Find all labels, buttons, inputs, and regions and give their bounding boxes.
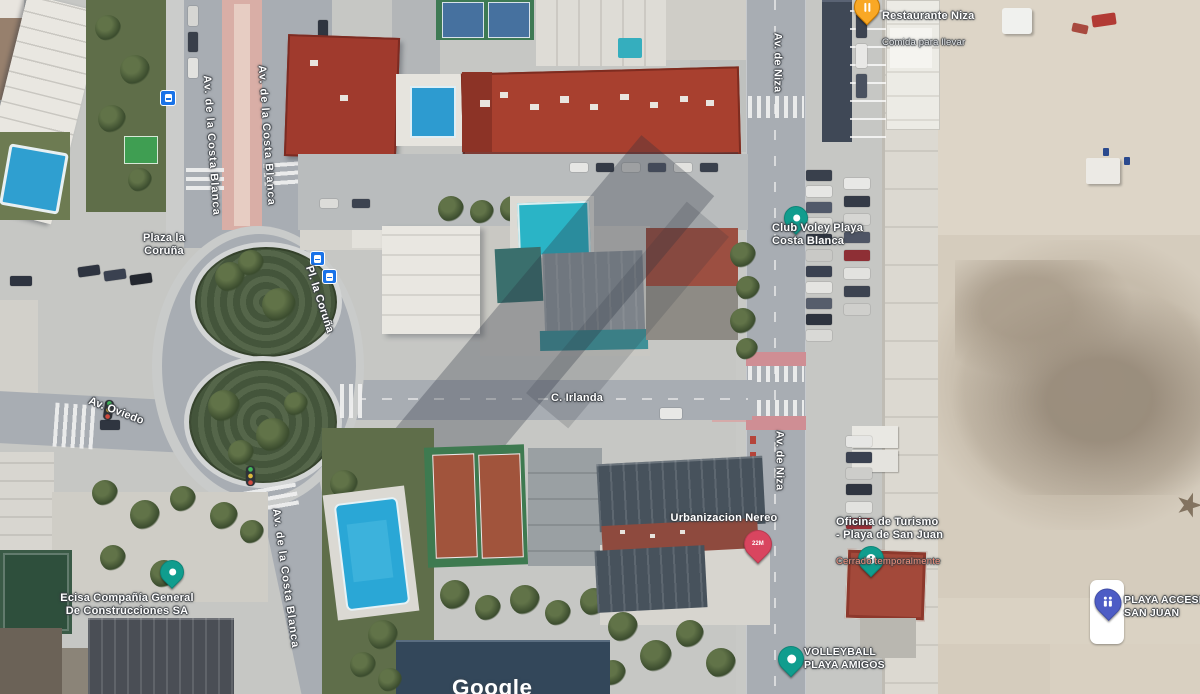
walkway-detail	[680, 530, 685, 534]
walkway-detail	[620, 530, 625, 534]
parked-car	[570, 163, 588, 172]
palm-tree	[368, 620, 398, 650]
tree	[676, 620, 704, 648]
roof-vent	[480, 100, 490, 107]
parked-car	[10, 276, 32, 286]
parked-car	[806, 186, 832, 197]
tree	[120, 55, 150, 85]
poi-label-volleyball[interactable]: VOLLEYBALL PLAYA AMIGOS	[804, 646, 914, 671]
building	[0, 300, 38, 396]
palm-tree	[510, 585, 540, 615]
ball-glyph	[787, 655, 796, 664]
tree	[95, 15, 121, 41]
poi-label-club-voley[interactable]: Club Voley Playa Costa Blanca	[772, 222, 892, 248]
pin-badge-text: 22M	[752, 541, 764, 547]
building	[0, 452, 54, 552]
tennis-court	[488, 2, 530, 38]
beach-bin	[1103, 148, 1109, 156]
parked-car	[844, 304, 870, 315]
poi-label-urbanizacion-nereo[interactable]: Urbanizacion Nereo	[659, 512, 789, 525]
parked-car	[846, 436, 872, 447]
tree	[470, 200, 494, 224]
tennis-court	[442, 2, 484, 38]
tree	[438, 196, 464, 222]
roof-vent	[560, 96, 569, 103]
parked-car	[844, 250, 870, 261]
parked-car	[103, 269, 126, 282]
building	[536, 0, 666, 66]
tree	[730, 242, 756, 268]
road-label-c-irlanda: C. Irlanda	[532, 392, 622, 405]
poi-label-restaurante-niza[interactable]: Restaurante Niza Comida para llevar	[882, 0, 1022, 62]
car	[100, 420, 120, 430]
dark-building	[822, 0, 852, 142]
parked-car	[129, 273, 152, 286]
palm-tree	[284, 392, 308, 416]
palm-tree	[545, 600, 571, 626]
palm-tree	[228, 440, 254, 466]
parked-car	[806, 314, 832, 325]
parked-car	[188, 32, 198, 52]
tree	[128, 168, 152, 192]
sports-court	[124, 136, 158, 164]
parked-car	[352, 199, 370, 208]
roof-vent	[500, 92, 508, 98]
red-building-wing	[462, 72, 492, 152]
dark-roof-building	[88, 618, 234, 694]
bus-stop-icon[interactable]	[322, 269, 337, 284]
parked-car	[806, 282, 832, 293]
bus-glyph	[326, 273, 333, 281]
tree	[730, 308, 756, 334]
condo-building	[382, 226, 480, 334]
tree	[706, 648, 736, 678]
tree	[350, 652, 376, 678]
parked-car	[806, 170, 832, 181]
crosswalk	[340, 384, 366, 418]
tree	[736, 276, 760, 300]
tree	[378, 668, 402, 692]
tennis-court-clay	[432, 453, 478, 558]
roof-vent	[706, 100, 714, 106]
tennis-court-clay	[478, 453, 524, 558]
palm-tree	[92, 480, 118, 506]
swimming-pool	[0, 143, 69, 214]
map-canvas[interactable]: 22M Av. de la Costa Blanca Av. de la Cos…	[0, 0, 1200, 694]
building	[666, 0, 746, 60]
parked-car	[844, 178, 870, 189]
poi-status: Cerrado temporalmente	[836, 556, 976, 568]
palm-tree	[238, 250, 264, 276]
parked-car	[806, 298, 832, 309]
nereo-building	[594, 545, 707, 613]
roof-vent	[530, 104, 539, 110]
roof-vent	[650, 102, 658, 108]
area-label-plaza-la-coruna: Plaza la Coruña	[118, 232, 210, 258]
building	[62, 648, 88, 694]
swimming-pool	[410, 86, 456, 138]
dot-glyph	[169, 569, 176, 576]
building	[0, 628, 62, 694]
tree	[608, 612, 638, 642]
building	[528, 448, 602, 566]
rooftop-pool	[618, 38, 642, 58]
building-roof	[0, 0, 24, 18]
parked-car	[188, 58, 198, 78]
parked-car	[856, 44, 867, 68]
walkway-detail	[650, 534, 655, 538]
poi-detail: Comida para llevar	[882, 37, 1022, 49]
poi-label-ecisa[interactable]: Ecisa Compañía General De Construcciones…	[42, 592, 212, 618]
crosswalk	[748, 400, 804, 416]
beach-light-bottom	[1050, 644, 1200, 694]
parked-car	[844, 196, 870, 207]
parked-car	[806, 250, 832, 261]
roof-vent	[620, 94, 629, 100]
parked-car	[700, 163, 718, 172]
roof-vent	[340, 95, 348, 101]
tree	[640, 640, 672, 672]
parked-car	[844, 268, 870, 279]
parked-car	[320, 199, 338, 208]
palm-tree	[210, 502, 238, 530]
parked-car	[846, 452, 872, 463]
roof-vent	[310, 60, 318, 66]
traffic-light-icon	[246, 466, 255, 486]
bus-glyph	[314, 255, 321, 263]
google-logo[interactable]: Google	[452, 677, 533, 694]
dot-glyph	[793, 215, 800, 222]
crosswalk	[53, 403, 96, 450]
bus-stop-icon[interactable]	[160, 90, 176, 106]
road-label-av-niza-n: Av. de Niza	[770, 18, 783, 108]
palm-tree	[170, 486, 196, 512]
road-label-av-niza-s: Av. de Niza	[772, 416, 785, 506]
pool-shallow	[347, 520, 394, 582]
tree	[736, 338, 758, 360]
pink-median-path	[234, 4, 250, 226]
roof-vent	[680, 96, 688, 102]
large-red-building	[461, 66, 741, 161]
palm-tree	[440, 580, 470, 610]
parked-car	[846, 484, 872, 495]
roof-vent	[590, 104, 598, 110]
car	[660, 408, 682, 419]
crosswalk	[748, 366, 804, 382]
parked-car	[856, 74, 867, 98]
parked-car	[806, 202, 832, 213]
parked-car	[806, 330, 832, 341]
poi-name: Restaurante Niza	[882, 10, 1022, 23]
parked-car	[844, 286, 870, 297]
palm-tree	[240, 520, 264, 544]
parked-car	[806, 266, 832, 277]
parked-car	[846, 468, 872, 479]
palm-tree	[256, 418, 290, 452]
parked-car	[188, 6, 198, 26]
tree	[98, 105, 126, 133]
palm-tree	[262, 288, 296, 322]
palm-tree	[208, 390, 240, 422]
palm-tree	[475, 595, 501, 621]
badge-glyph: 22M	[752, 541, 764, 547]
poi-name: Oficina de Turismo - Playa de San Juan	[836, 516, 976, 542]
people-glyph	[1104, 597, 1113, 607]
beach-bin	[1124, 157, 1130, 165]
beach-swirl	[955, 260, 1135, 380]
poi-label-playa-accesible[interactable]: PLAYA ACCESI SAN JUAN	[1124, 594, 1200, 619]
poi-label-oficina-turismo[interactable]: Oficina de Turismo - Playa de San Juan C…	[836, 503, 976, 581]
beach-hut	[1086, 158, 1120, 184]
palm-tree	[130, 500, 160, 530]
palm-tree	[100, 545, 126, 571]
bus-glyph	[165, 94, 172, 102]
parked-car	[77, 265, 100, 278]
